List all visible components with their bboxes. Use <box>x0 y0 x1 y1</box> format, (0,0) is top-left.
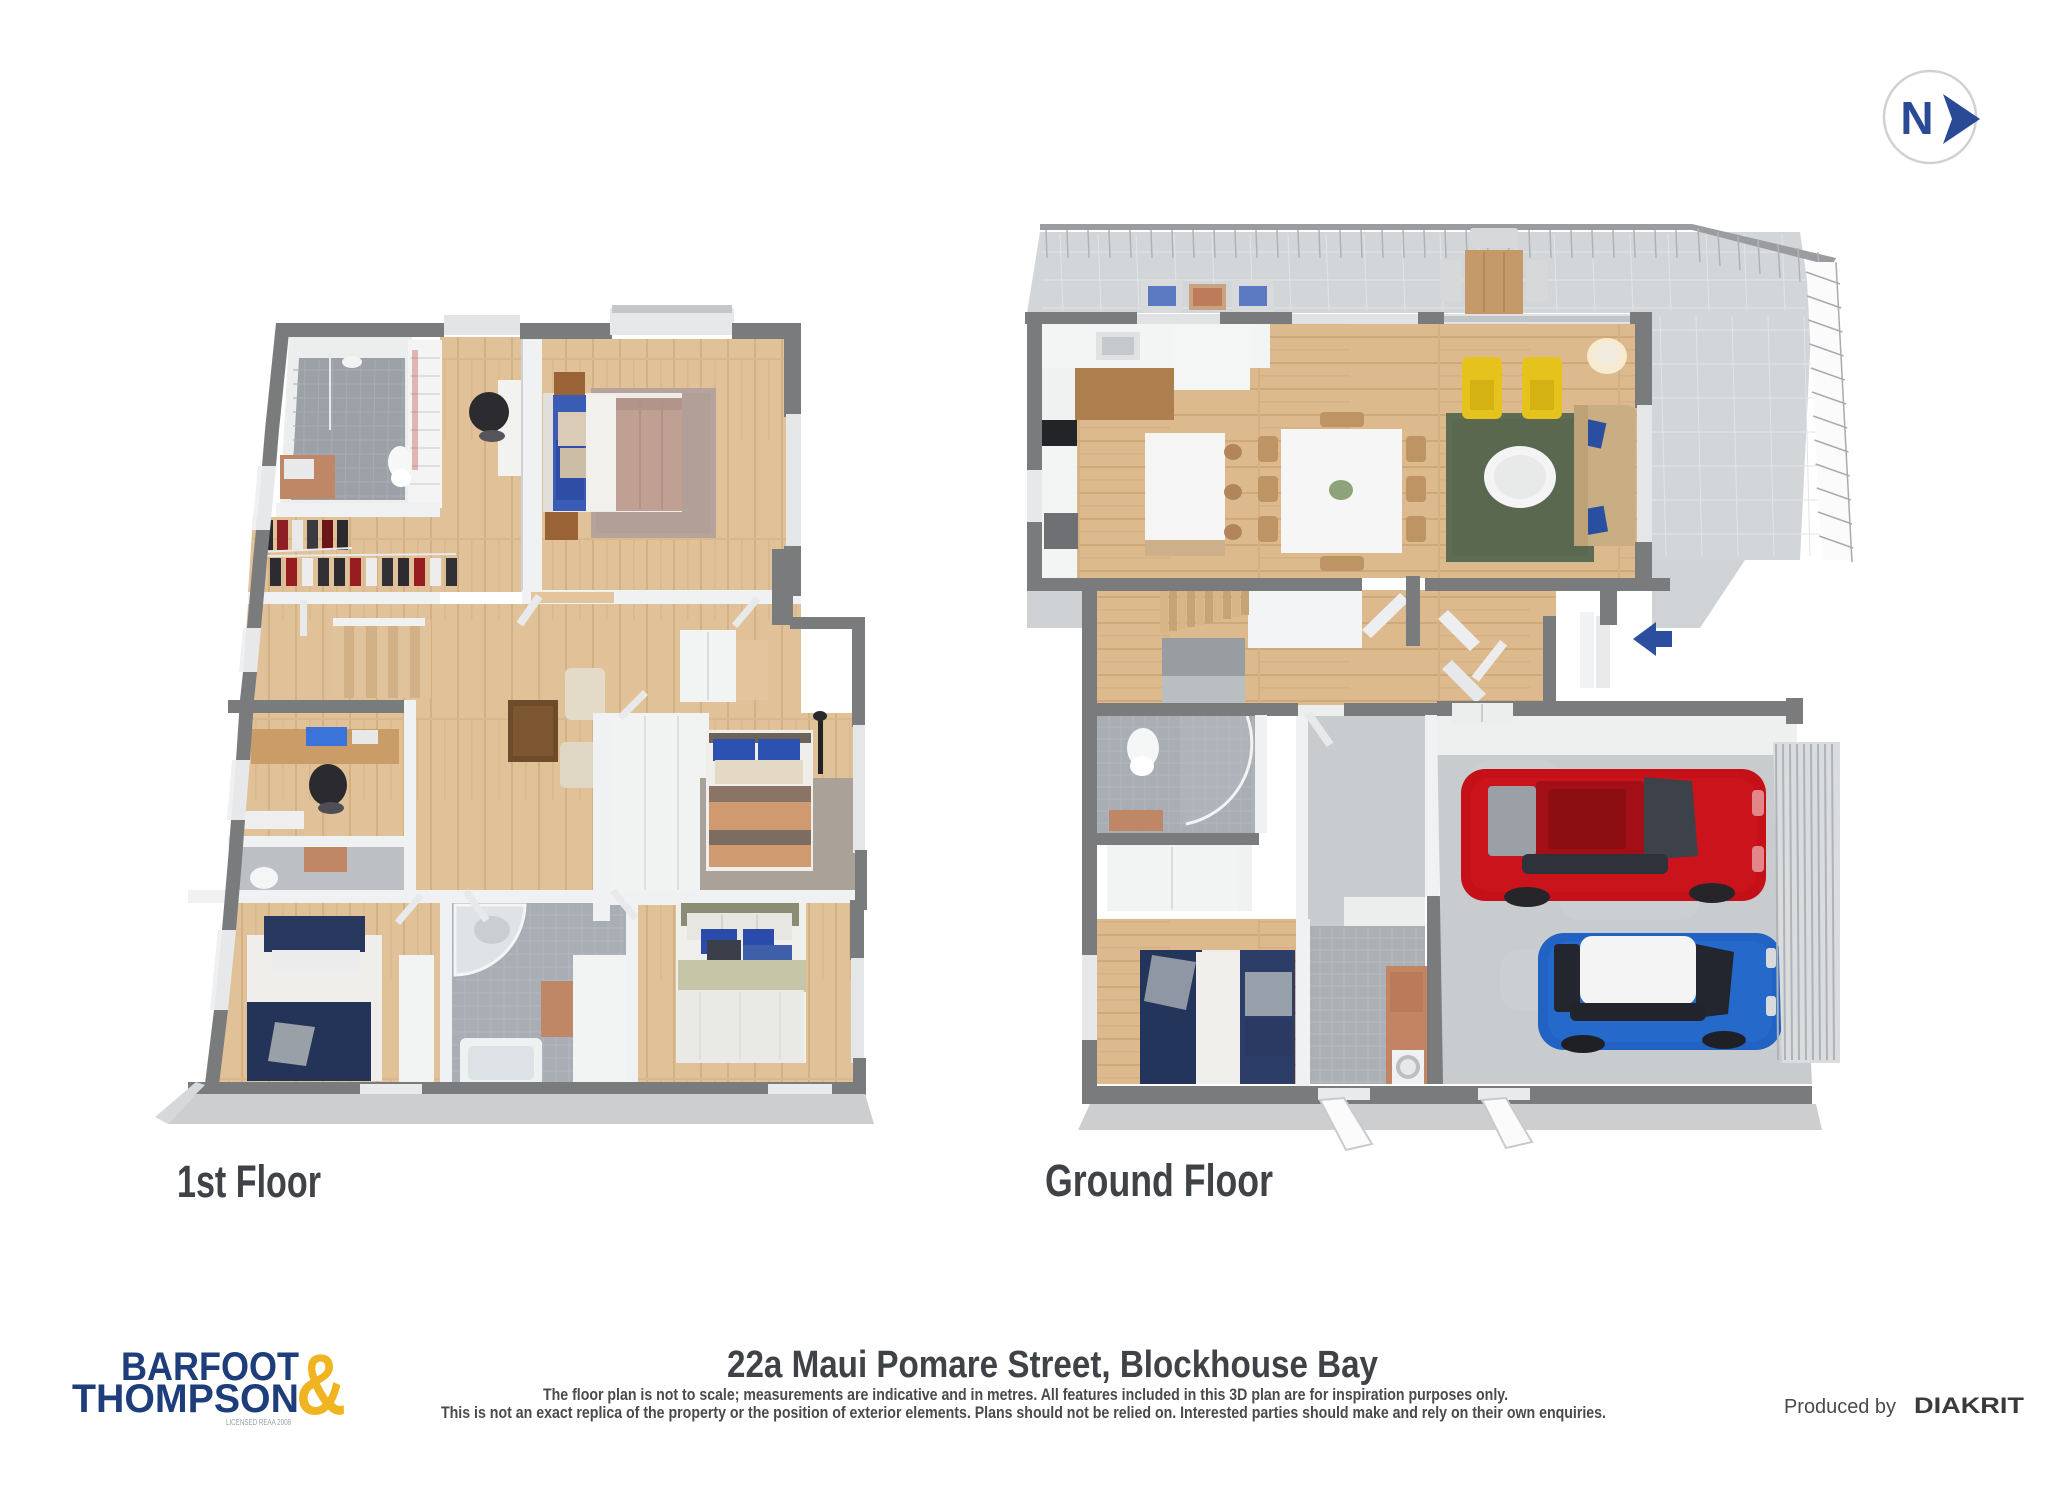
svg-text:DIAKRIT: DIAKRIT <box>1914 1393 2025 1418</box>
svg-text:Ground Floor: Ground Floor <box>1045 1155 1273 1206</box>
svg-text:&: & <box>296 1337 346 1433</box>
svg-text:THOMPSON: THOMPSON <box>72 1377 299 1421</box>
svg-text:N: N <box>1900 92 1933 144</box>
svg-text:22a Maui Pomare Street, Block: 22a Maui Pomare Street, Blockhouse Bay <box>727 1344 1378 1386</box>
svg-text:LICENSED REAA 2008: LICENSED REAA 2008 <box>226 1417 291 1427</box>
svg-text:Produced by: Produced by <box>1784 1396 1896 1418</box>
svg-text:This is not an exact replica o: This is not an exact replica of the prop… <box>441 1403 1606 1422</box>
svg-text:The floor plan is not to scale: The floor plan is not to scale; measurem… <box>543 1385 1508 1404</box>
svg-text:1st Floor: 1st Floor <box>177 1156 321 1207</box>
